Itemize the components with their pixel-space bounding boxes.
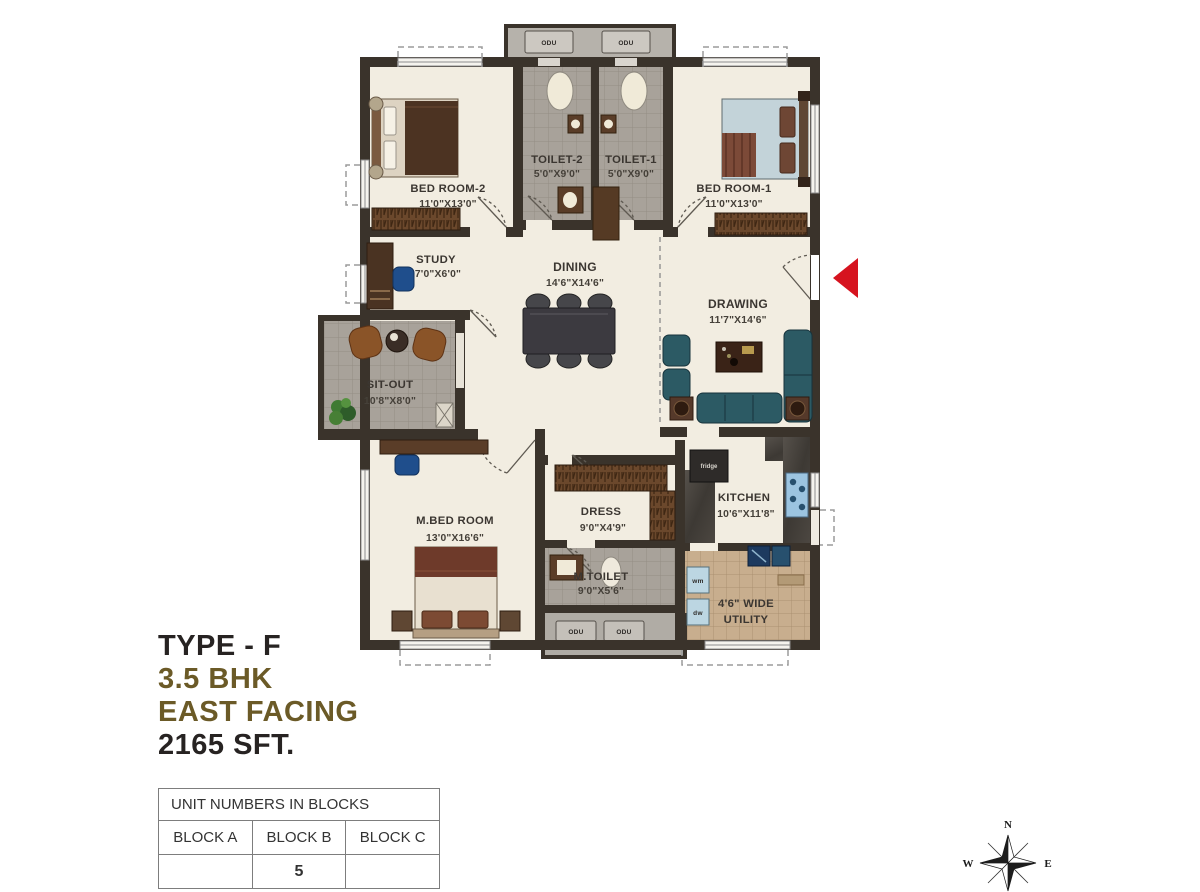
block-c-header: BLOCK C (346, 821, 439, 854)
dress-dim: 9'0"X4'9" (580, 523, 626, 534)
toilet1-label: TOILET-1 (605, 154, 657, 166)
compass-north-label: N (1004, 819, 1012, 831)
bedroom1-bed-icon (722, 91, 810, 187)
toilet2-dim: 5'0"X9'0" (534, 169, 580, 180)
mbedroom-dim: 13'0"X16'6" (426, 533, 484, 544)
utility-label: 4'6" WIDE (718, 598, 774, 610)
floor-plan: ODU ODU ODU ODU (310, 15, 870, 670)
kitchen-label: KITCHEN (718, 492, 770, 504)
sitout-label: SIT-OUT (367, 379, 414, 391)
wm-label: wm (691, 578, 703, 585)
bedroom1-wardrobe-icon (715, 213, 807, 235)
compass-east-label: E (1044, 858, 1051, 870)
utility-label2: UTILITY (724, 614, 769, 626)
unit-numbers-table: UNIT NUMBERS IN BLOCKS BLOCK A BLOCK B B… (158, 788, 440, 889)
plan-facing: EAST FACING (158, 696, 358, 729)
dining-dim: 14'6"X14'6" (546, 278, 604, 289)
bedroom2-bed-icon (369, 97, 458, 179)
service-ledge-top: ODU ODU (504, 24, 676, 62)
bedroom2-dim: 11'0"X13'0" (419, 199, 477, 210)
odu-unit-label: ODU (541, 40, 556, 47)
bedroom2-label: BED ROOM-2 (410, 183, 485, 195)
dw-label: dw (693, 610, 703, 617)
dress-wardrobe-side-icon (650, 491, 675, 540)
fridge-label: fridge (701, 464, 718, 470)
mtoilet-label: M.TOILET (574, 571, 629, 583)
unit-table-title: UNIT NUMBERS IN BLOCKS (159, 789, 439, 821)
drawing-dim: 11'7"X14'6" (709, 315, 767, 326)
compass-west-label: W (963, 858, 974, 870)
block-b-header: BLOCK B (253, 821, 347, 854)
plan-area: 2165 SFT. (158, 729, 358, 762)
block-a-value (159, 854, 253, 888)
toilet2-label: TOILET-2 (531, 154, 583, 166)
service-ledge-bottom: ODU ODU (541, 613, 687, 659)
block-a-header: BLOCK A (159, 821, 253, 854)
odu-unit-label: ODU (618, 40, 633, 47)
study-dim: 7'0"X6'0" (415, 269, 461, 280)
dining-label: DINING (553, 260, 597, 274)
kitchen-dim: 10'6"X11'8" (717, 509, 775, 520)
dress-label: DRESS (581, 506, 622, 518)
study-label: STUDY (416, 254, 456, 266)
plan-bhk: 3.5 BHK (158, 663, 358, 696)
dining-table-icon (523, 294, 615, 368)
toilet1-dim: 5'0"X9'0" (608, 169, 654, 180)
mtoilet-dim: 9'0"X5'6" (578, 586, 624, 597)
unit-table-header-row: BLOCK A BLOCK B BLOCK C (159, 821, 439, 854)
odu-unit-label: ODU (568, 629, 583, 636)
bedroom1-label: BED ROOM-1 (696, 183, 771, 195)
dress-wardrobe-top-icon (555, 465, 667, 491)
mbedroom-label: M.BED ROOM (416, 515, 494, 527)
unit-table-value-row: 5 (159, 854, 439, 888)
odu-unit-label: ODU (616, 629, 631, 636)
sitout-dim: 10'8"X8'0" (364, 396, 416, 407)
plan-type: TYPE - F (158, 630, 358, 663)
bedroom1-dim: 11'0"X13'0" (705, 199, 763, 210)
block-c-value (346, 854, 439, 888)
entry-arrow-icon (833, 258, 858, 298)
bedroom2-wardrobe-icon (372, 208, 460, 230)
drawing-label: DRAWING (708, 297, 768, 311)
plan-info-block: TYPE - F 3.5 BHK EAST FACING 2165 SFT. (158, 630, 358, 762)
block-b-value: 5 (253, 854, 347, 888)
page: ODU ODU ODU ODU (0, 0, 1200, 892)
compass-rose-icon: N W E S (952, 808, 1064, 892)
